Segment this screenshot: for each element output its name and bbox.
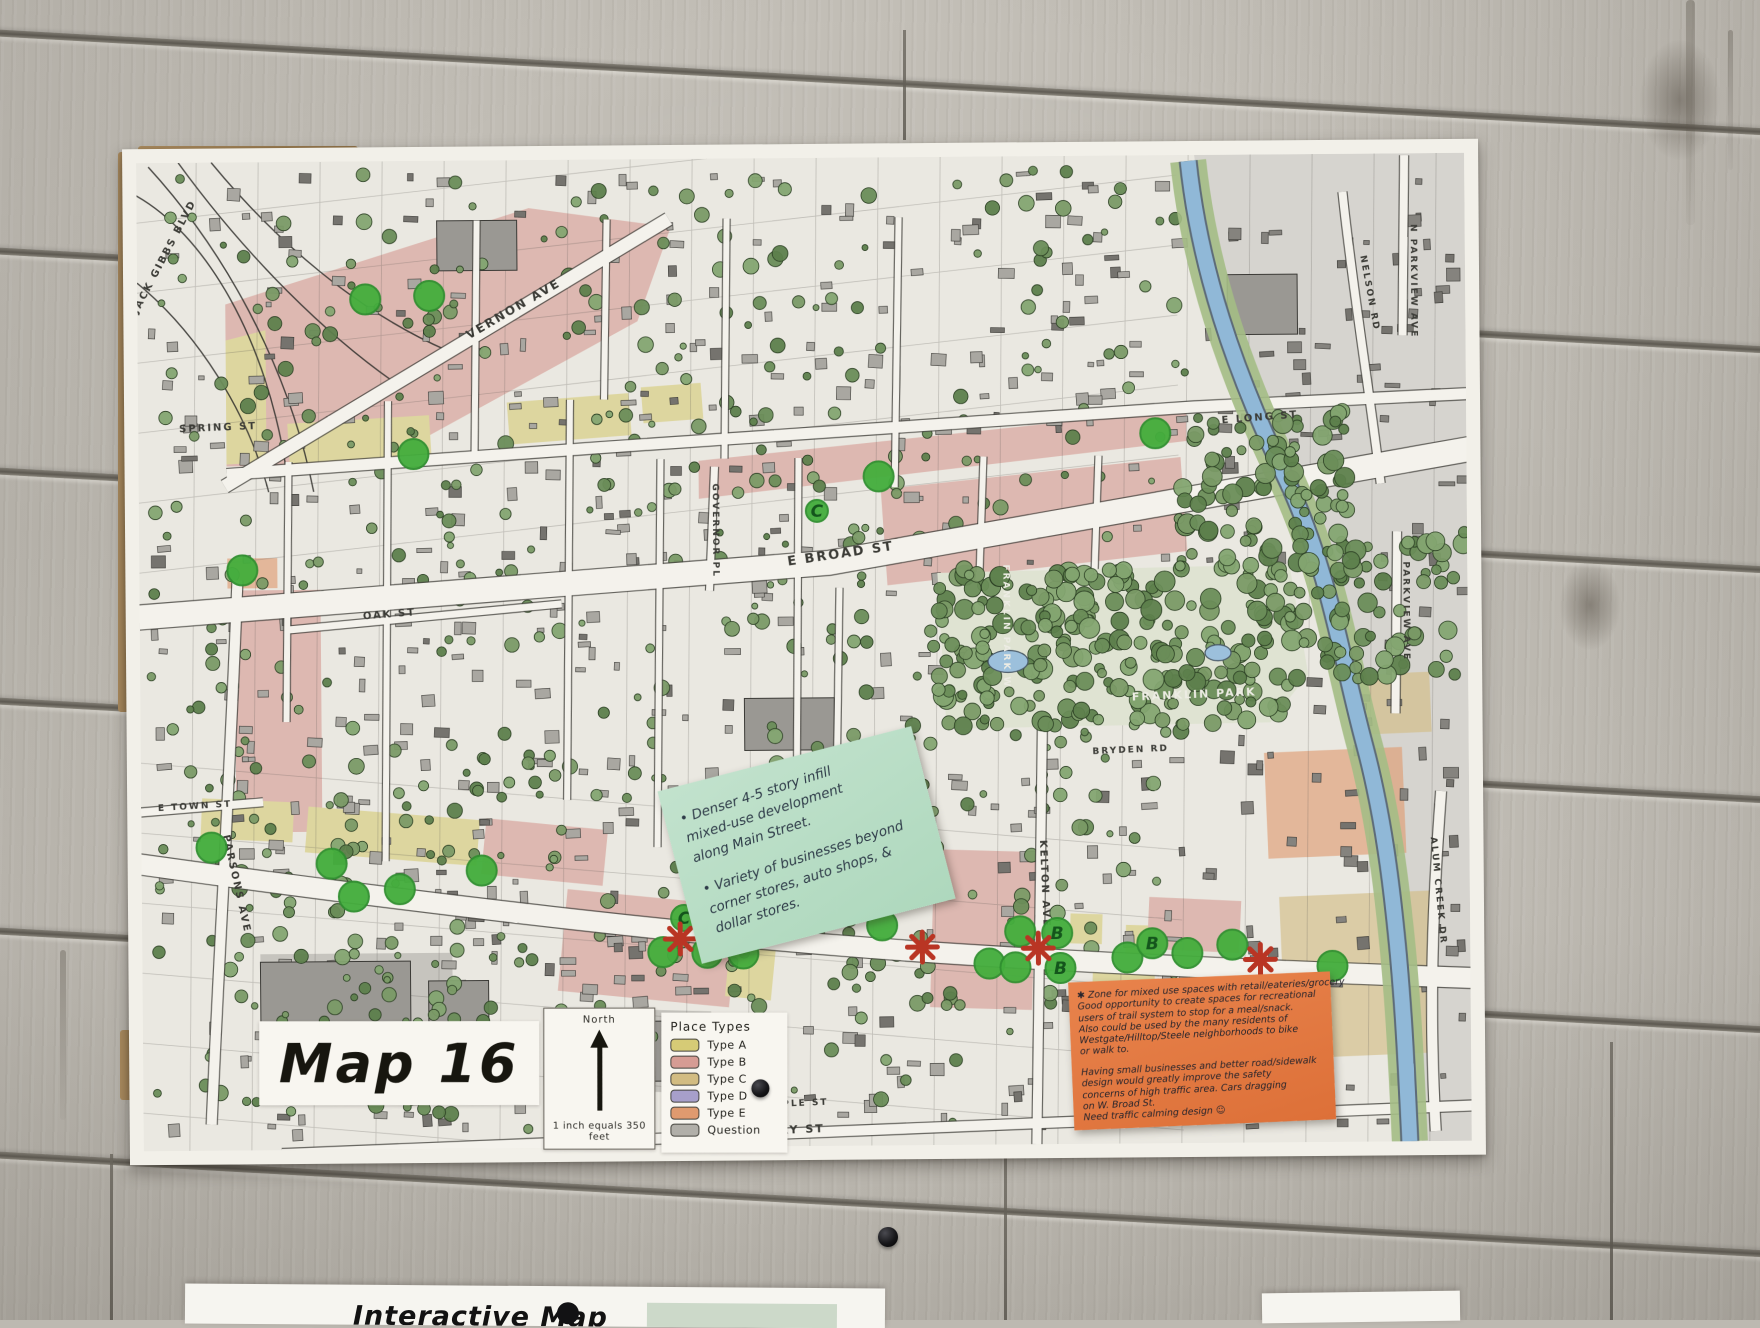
orange-note-text: ✱ Zone for mixed use spaces with retail/… [1067,970,1336,1124]
sticker-letter: C [811,502,824,522]
legend-item: Question [670,1124,778,1137]
green-dot-sticker [414,281,444,311]
bottom-paper [1262,1291,1460,1324]
legend-label: Type A [707,1039,746,1052]
legend-swatch [670,1124,699,1137]
legend-label: Type E [707,1107,746,1120]
legend-label: Question [707,1124,760,1137]
sticker-letter: B [1146,934,1159,954]
green-dot-sticker [1217,930,1247,960]
green-dot-sticker [1000,952,1030,982]
legend-title: Place Types [670,1020,778,1034]
legend-item: Type B [670,1056,778,1069]
green-dot-sticker [467,855,497,885]
red-asterisk-marker [1023,933,1053,963]
bottom-paper-green-area [647,1303,837,1328]
map-title: Map 16 [279,1032,520,1095]
green-dot-sticker [398,439,428,469]
north-arrow-box: North 1 inch equals 350 feet [543,1008,655,1150]
magnet [751,1079,769,1097]
legend-swatch [670,1039,699,1052]
bullet-dot [557,1302,579,1324]
plank-joint [903,30,906,140]
legend: Place Types Type AType BType CType DType… [661,1013,787,1153]
street-label: PARKVIEW AVE [1400,561,1411,661]
legend-swatch [670,1090,699,1103]
magnet [878,1227,898,1247]
legend-label: Type C [707,1073,746,1086]
legend-label: Type B [707,1056,746,1069]
wood-streak [60,950,66,1120]
green-dot-sticker [648,937,678,967]
green-dot-sticker [385,874,415,904]
green-dot-sticker [1140,418,1170,448]
plank-joint [110,1154,113,1320]
red-asterisk-marker [1245,944,1275,974]
legend-item: Type E [670,1107,778,1120]
red-asterisk-marker [665,924,695,954]
sticker-letter: B [1051,924,1064,944]
map-title-strip: Map 16 [259,1021,539,1105]
red-asterisk-marker [907,932,937,962]
legend-swatch [670,1107,699,1120]
green-dot-sticker [339,881,369,911]
green-dot-sticker [350,284,380,314]
plank-joint [1610,1042,1613,1320]
street-label: N PARKVIEW AVE [1408,224,1419,338]
wood-knot [1640,40,1720,160]
street-label: FRANKLIN PARK W [1000,564,1011,688]
legend-swatch [670,1056,699,1069]
green-dot-sticker [1172,938,1202,968]
bottom-paper: Interactive Map [185,1284,885,1328]
legend-label: Type D [707,1090,747,1103]
photo-of-planning-map-on-wood-wall: { "poster": { "title": "Map 16", "north_… [0,0,1760,1320]
wood-knot [1560,560,1620,650]
green-dot-sticker [196,833,226,863]
green-dot-sticker [864,461,894,491]
map-poster: JACK GIBBS BLVDSPRING STVERNON AVEE LONG… [122,139,1486,1166]
legend-swatch [670,1073,699,1086]
legend-item: Type A [670,1039,778,1052]
orange-sticky-note: ✱ Zone for mixed use spaces with retail/… [1068,971,1336,1130]
street-label: GOVERNOR PL [710,483,721,577]
green-dot-sticker [227,555,257,585]
wood-streak [1728,30,1733,170]
scale-text: 1 inch equals 350 feet [548,1121,650,1143]
north-arrow-icon [597,1036,602,1110]
sticker-letter: B [1054,959,1067,979]
green-dot-sticker [317,849,347,879]
plank-joint [1004,1158,1007,1320]
